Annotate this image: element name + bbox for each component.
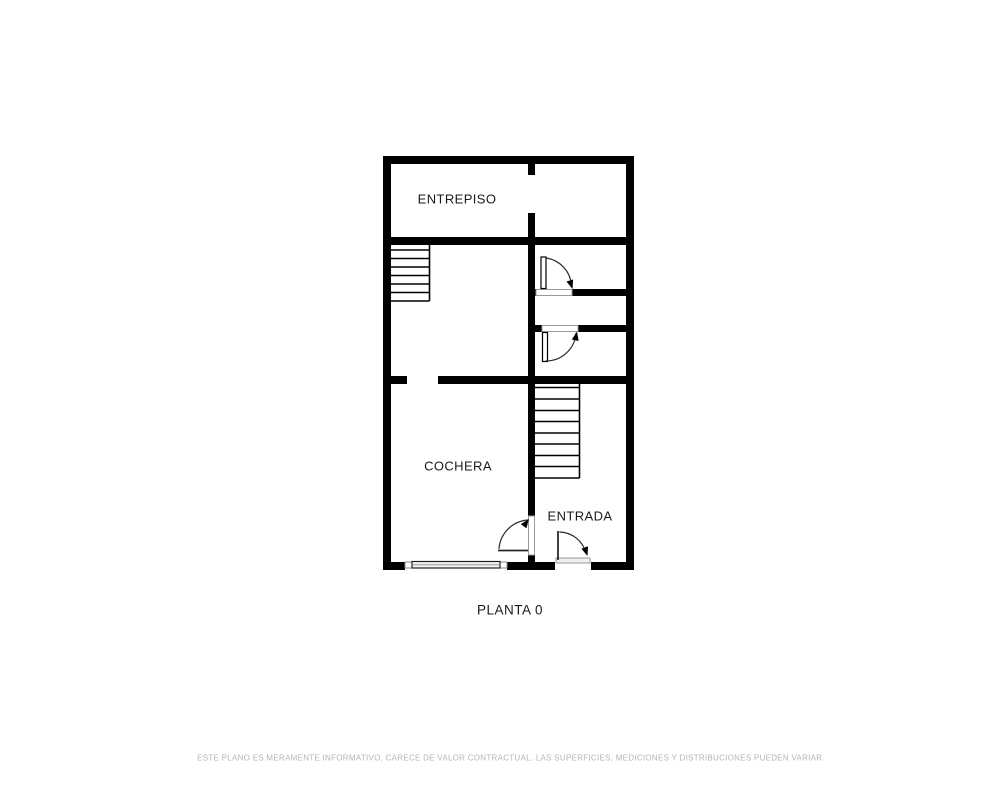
wall-cochera-top-seg2	[438, 376, 634, 384]
stairs-lower	[535, 384, 580, 478]
door-upper-right-room	[536, 257, 573, 296]
wall-cochera-top-seg1	[383, 376, 407, 384]
door-cochera	[498, 516, 535, 555]
wall-bottom-seg3	[591, 562, 634, 570]
door-swing-arrow-icon	[581, 546, 588, 556]
floor-label: PLANTA 0	[477, 603, 543, 618]
garage-door	[405, 562, 507, 569]
wall-entrepiso-bottom	[383, 237, 634, 245]
door-swing-arc	[547, 258, 572, 285]
wall-left	[383, 156, 391, 570]
wall-top-stub-upper	[528, 164, 535, 175]
disclaimer-text: ESTE PLANO ES MERAMENTE INFORMATIVO, CAR…	[197, 754, 825, 763]
wall-room2-top-seg2	[578, 325, 626, 332]
wall-room1-bottom-seg1	[528, 289, 536, 296]
room-label-entrada: ENTRADA	[548, 509, 613, 524]
stairs-upper	[391, 245, 430, 301]
door-swing-arc	[546, 333, 577, 361]
door-swing-arrow-icon	[567, 280, 574, 290]
floor-plan-drawing	[0, 0, 1000, 800]
wall-top	[383, 156, 634, 164]
door-mid-right-room	[542, 326, 579, 362]
wall-vertical-mid	[528, 245, 535, 376]
door-threshold	[542, 326, 578, 332]
room-label-entrepiso: ENTREPISO	[418, 192, 497, 207]
wall-room1-bottom-seg2	[572, 289, 626, 296]
door-swing-arrow-icon	[572, 332, 579, 342]
wall-vertical-lower-seg1	[528, 384, 535, 516]
interior-walls	[383, 164, 634, 562]
door-swing-arc	[560, 532, 587, 553]
wall-bottom-seg2	[507, 562, 555, 570]
door-entrance	[556, 531, 590, 563]
floor-plan-page: ENTREPISO COCHERA ENTRADA PLANTA 0 ESTE …	[0, 0, 1000, 800]
door-threshold	[529, 516, 535, 555]
door-leaf	[541, 257, 546, 289]
door-leaf	[543, 333, 548, 362]
door-threshold	[536, 290, 572, 296]
wall-vertical-lower-seg2	[528, 555, 535, 562]
door-threshold	[556, 558, 590, 563]
room-label-cochera: COCHERA	[424, 459, 492, 474]
wall-top-stub-lower	[528, 213, 535, 237]
wall-bottom-seg1	[383, 562, 405, 570]
wall-room2-top-seg1	[528, 325, 542, 332]
wall-right	[626, 156, 634, 570]
